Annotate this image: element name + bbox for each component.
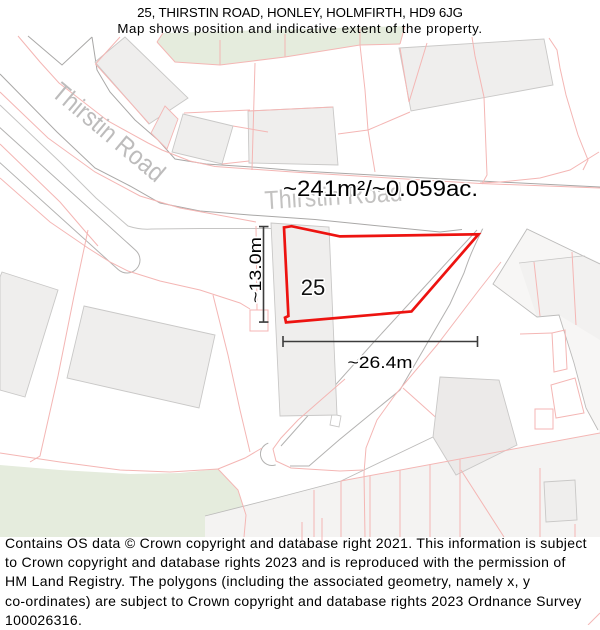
- svg-text:~13.0m: ~13.0m: [247, 237, 265, 303]
- svg-text:~26.4m: ~26.4m: [348, 354, 413, 372]
- svg-text:25: 25: [301, 275, 325, 300]
- svg-text:~241m²/~0.059ac.: ~241m²/~0.059ac.: [283, 176, 478, 201]
